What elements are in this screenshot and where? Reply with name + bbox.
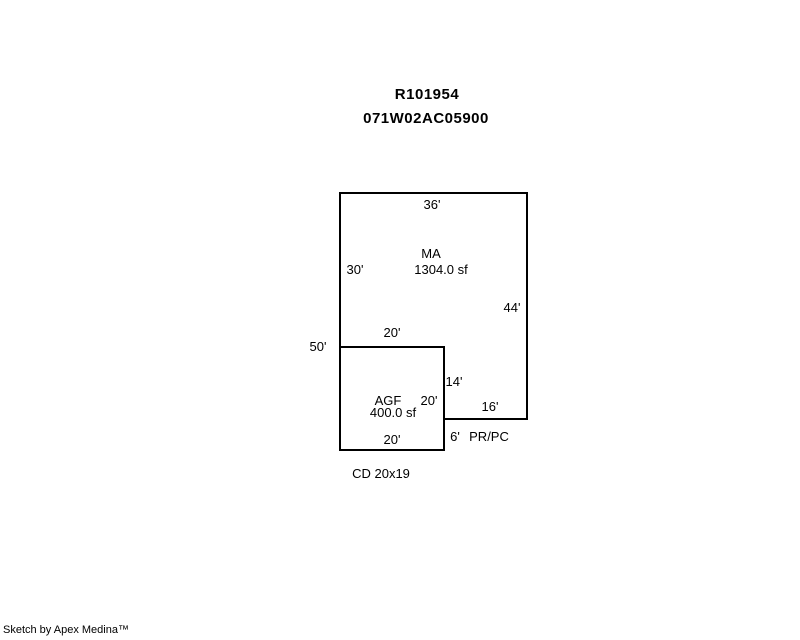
dimension-left-total: 50' [310,340,327,354]
covered-deck-note: CD 20x19 [352,467,410,481]
garage-bottom-wall [339,449,445,451]
garage-top-wall [339,346,445,348]
sketch-page: R101954 071W02AC05900 36' MA 30' 1304.0 … [0,0,800,640]
dimension-right: 44' [504,301,521,315]
garage-dimension-right: 20' [421,394,438,408]
porch-dimension: 6' [450,430,460,444]
left-wall [339,192,341,451]
main-area-right-wall [526,192,528,420]
dimension-step: 20' [384,326,401,340]
main-area-sqft: 1304.0 sf [414,263,468,277]
sketch-credit: Sketch by Apex Medina™ [3,624,129,636]
main-area-bottom-wall [443,418,528,420]
dimension-left-upper: 30' [347,263,364,277]
dimension-inner-right: 14' [446,375,463,389]
map-taxlot-number: 071W02AC05900 [363,111,489,127]
record-number: R101954 [395,87,459,103]
dimension-top: 36' [424,198,441,212]
garage-right-wall [443,346,445,451]
garage-dimension-bottom: 20' [384,433,401,447]
porch-code: PR/PC [469,430,509,444]
main-area-top-wall [339,192,528,194]
dimension-bottom-right: 16' [482,400,499,414]
main-area-code: MA [421,247,441,261]
garage-sqft: 400.0 sf [370,406,416,420]
